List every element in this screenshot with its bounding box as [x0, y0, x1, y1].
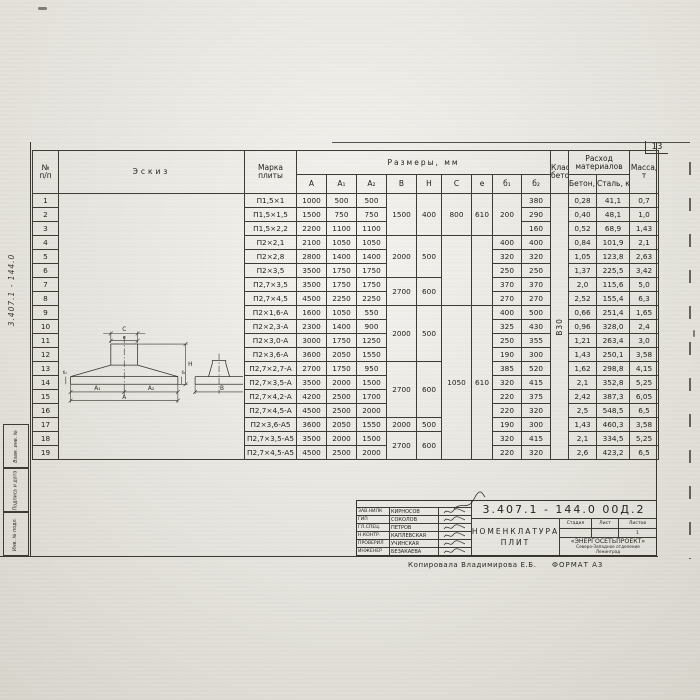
cell-A1: 1400 — [327, 320, 357, 334]
cell-b2: 415 — [522, 376, 551, 390]
signer-name: Безакаева — [390, 548, 439, 555]
cell-C: 800 — [442, 194, 472, 236]
signer-name: Соколов — [390, 516, 439, 523]
cell-A1: 1050 — [327, 236, 357, 250]
cell-e — [472, 236, 493, 306]
cell-mark: П1,5×1,5 — [245, 208, 297, 222]
cell-massa: 6,5 — [630, 446, 659, 460]
cell-A2: 950 — [357, 362, 387, 376]
stamp-vzam-inv: Взам. инв. № — [3, 424, 29, 468]
cell-massa: 6,5 — [630, 404, 659, 418]
cell-A2: 1500 — [357, 432, 387, 446]
cell-A1: 750 — [327, 208, 357, 222]
cell-A2: 1500 — [357, 376, 387, 390]
cell-num: 10 — [33, 320, 59, 334]
cell-A2: 900 — [357, 320, 387, 334]
col-header-A2: A₂ — [357, 175, 387, 194]
cell-mark: П2×3,6-А5 — [245, 418, 297, 432]
cell-A2: 2250 — [357, 292, 387, 306]
cell-B: 2000 — [387, 306, 417, 362]
cell-beton: 0,66 — [569, 306, 597, 320]
cell-mark: П2,7×4,2-А — [245, 390, 297, 404]
cell-mark: П2×3,5 — [245, 264, 297, 278]
cell-massa: 1,43 — [630, 222, 659, 236]
cell-b2: 270 — [522, 292, 551, 306]
cell-A: 2700 — [297, 362, 327, 376]
cell-beton: 2,52 — [569, 292, 597, 306]
cell-num: 5 — [33, 250, 59, 264]
cell-A: 3000 — [297, 334, 327, 348]
cell-massa: 3,58 — [630, 418, 659, 432]
cell-H: 500 — [417, 236, 442, 278]
cell-A1: 2000 — [327, 376, 357, 390]
cell-A: 1500 — [297, 208, 327, 222]
document-number: 3.407.1 - 144.0 00Д.2 — [472, 501, 656, 519]
cell-stal: 41,1 — [597, 194, 630, 208]
cell-b2: 300 — [522, 418, 551, 432]
col-header-class: Классбетона — [551, 151, 569, 194]
cell-num: 13 — [33, 362, 59, 376]
cell-A2: 500 — [357, 194, 387, 208]
cell-beton: 0,40 — [569, 208, 597, 222]
cell-beton: 2,42 — [569, 390, 597, 404]
cell-B: 2000 — [387, 418, 417, 432]
cell-stal: 123,8 — [597, 250, 630, 264]
col-header-consumption: Расходматериалов — [569, 151, 630, 175]
cell-b2: 380 — [522, 194, 551, 208]
cell-b1: 370 — [493, 278, 522, 292]
cell-num: 15 — [33, 390, 59, 404]
cell-stal: 352,8 — [597, 376, 630, 390]
signature — [439, 548, 471, 555]
cell-beton: 1,21 — [569, 334, 597, 348]
cell-stal: 68,9 — [597, 222, 630, 236]
cell-A2: 1400 — [357, 250, 387, 264]
signer-name: Петров — [390, 524, 439, 531]
fold-dashed-line — [689, 162, 691, 559]
cell-e: 610 — [472, 194, 493, 236]
col-header-b2: б₂ — [522, 175, 551, 194]
cell-A1: 1750 — [327, 264, 357, 278]
cell-A: 4500 — [297, 446, 327, 460]
signer-role: Н.контр. — [357, 532, 390, 539]
sheet-value — [592, 529, 619, 537]
title-block: Зав.НИЛККирносовГИПСоколовГл.спец.Петров… — [356, 500, 657, 556]
cell-A: 1600 — [297, 306, 327, 320]
cell-A: 4500 — [297, 404, 327, 418]
edge-stamp-column: Взам. инв. № Подпись и дата Инв. № подл. — [3, 424, 29, 556]
cell-massa: 3,0 — [630, 334, 659, 348]
cell-b1: 220 — [493, 390, 522, 404]
cell-A2: 2000 — [357, 404, 387, 418]
cell-A: 3500 — [297, 278, 327, 292]
cell-num: 1 — [33, 194, 59, 208]
cell-num: 12 — [33, 348, 59, 362]
cell-A: 2300 — [297, 320, 327, 334]
stamp-podpis-data: Подпись и дата — [3, 468, 29, 512]
cell-beton: 0,52 — [569, 222, 597, 236]
cell-b2: 370 — [522, 278, 551, 292]
col-header-mark: Маркаплиты — [245, 151, 297, 194]
signature — [439, 540, 471, 547]
sketch-cell: C е A₁ A₂ A H б₁ б₂ B 160 — [59, 194, 245, 460]
cell-num: 19 — [33, 446, 59, 460]
plate-section-drawing: C е A₁ A₂ A H б₁ б₂ B 160 — [61, 325, 243, 411]
cell-mark: П2,7×4,5-А5 — [245, 446, 297, 460]
cell-b1: 190 — [493, 348, 522, 362]
cell-beton: 1,37 — [569, 264, 597, 278]
cell-mark: П2×2,8 — [245, 250, 297, 264]
cell-mark: П2,7×4,5 — [245, 292, 297, 306]
signer-name: Кирносов — [390, 508, 439, 515]
cell-C — [442, 236, 472, 306]
cell-b2: 520 — [522, 362, 551, 376]
cell-A1: 1750 — [327, 278, 357, 292]
cell-A2: 1750 — [357, 278, 387, 292]
scan-speck — [38, 7, 47, 10]
cell-massa: 6,05 — [630, 390, 659, 404]
cell-stal: 115,6 — [597, 278, 630, 292]
cell-A: 2100 — [297, 236, 327, 250]
cell-num: 8 — [33, 292, 59, 306]
frame-bottom-line — [0, 556, 658, 557]
cell-H: 500 — [417, 418, 442, 432]
stage-header: Стадия — [560, 519, 592, 528]
cell-b1: 200 — [493, 194, 522, 236]
cell-num: 14 — [33, 376, 59, 390]
cell-e: 610 — [472, 306, 493, 460]
col-header-num: №п/п — [33, 151, 59, 194]
cell-num: 16 — [33, 404, 59, 418]
cell-stal: 298,8 — [597, 362, 630, 376]
signer-role: Проверил — [357, 540, 390, 547]
cell-beton: 1,62 — [569, 362, 597, 376]
cell-stal: 251,4 — [597, 306, 630, 320]
side-doc-number: 3.407.1 - 144.0 — [7, 230, 21, 350]
cell-massa: 2,1 — [630, 236, 659, 250]
cell-A: 4200 — [297, 390, 327, 404]
signer-role: ГИП — [357, 516, 390, 523]
cell-A2: 1050 — [357, 236, 387, 250]
cell-massa: 1,65 — [630, 306, 659, 320]
cell-mark: П1,5×2,2 — [245, 222, 297, 236]
cell-num: 2 — [33, 208, 59, 222]
cell-b2: 430 — [522, 320, 551, 334]
cell-mark: П2,7×3,5-А — [245, 376, 297, 390]
cell-stal: 250,1 — [597, 348, 630, 362]
cell-mark: П2×3,6-А — [245, 348, 297, 362]
cell-B: 2700 — [387, 278, 417, 306]
col-header-H: H — [417, 175, 442, 194]
cell-concrete-class: В30 — [551, 194, 569, 460]
cell-stal: 225,5 — [597, 264, 630, 278]
cell-num: 11 — [33, 334, 59, 348]
cell-num: 4 — [33, 236, 59, 250]
cell-mark: П1,5×1 — [245, 194, 297, 208]
nomenclature-table: №п/п Эскиз Маркаплиты Размеры, мм Классб… — [32, 150, 659, 460]
col-header-mass: Масса,т — [630, 151, 659, 194]
dim-label-A2: A₂ — [147, 386, 153, 392]
cell-num: 3 — [33, 222, 59, 236]
cell-b2: 250 — [522, 264, 551, 278]
col-header-b1: б₁ — [493, 175, 522, 194]
cell-A2: 1700 — [357, 390, 387, 404]
cell-A1: 2500 — [327, 446, 357, 460]
signer-row: Н.контр.Каплевская — [357, 532, 471, 540]
cell-A: 1000 — [297, 194, 327, 208]
cell-massa: 2,4 — [630, 320, 659, 334]
cell-massa: 4,15 — [630, 362, 659, 376]
signer-row: ПроверилУчинская — [357, 540, 471, 548]
cell-b2: 355 — [522, 334, 551, 348]
signature-flourish — [452, 491, 486, 513]
cell-A: 2800 — [297, 250, 327, 264]
cell-A2: 2000 — [357, 446, 387, 460]
cell-beton: 0,96 — [569, 320, 597, 334]
cell-beton: 0,28 — [569, 194, 597, 208]
cell-A2: 750 — [357, 208, 387, 222]
title-block-signers: Зав.НИЛККирносовГИПСоколовГл.спец.Петров… — [357, 501, 472, 555]
cell-b1: 270 — [493, 292, 522, 306]
cell-b2: 320 — [522, 446, 551, 460]
cell-b1: 325 — [493, 320, 522, 334]
col-header-e: е — [472, 175, 493, 194]
cell-A1: 1750 — [327, 362, 357, 376]
cell-A1: 1100 — [327, 222, 357, 236]
scan-speck — [693, 330, 695, 337]
cell-b1: 250 — [493, 264, 522, 278]
table-row: 1 C е A₁ A₂ A H б₁ б₂ B 160 П1,5×1100050… — [33, 194, 659, 208]
cell-A1: 1400 — [327, 250, 357, 264]
cell-A2: 1100 — [357, 222, 387, 236]
cell-stal: 101,9 — [597, 236, 630, 250]
cell-b1: 320 — [493, 376, 522, 390]
sheet-header: Лист — [592, 519, 619, 528]
cell-H: 600 — [417, 432, 442, 460]
cell-A1: 1050 — [327, 306, 357, 320]
cell-b2: 300 — [522, 348, 551, 362]
cell-b1: 190 — [493, 418, 522, 432]
dim-label-C: C — [122, 327, 126, 333]
plate-sketch: C е A₁ A₂ A H б₁ б₂ B 160 — [61, 325, 243, 413]
cell-A: 3600 — [297, 418, 327, 432]
cell-mark: П2,7×3,5-А5 — [245, 432, 297, 446]
cell-beton: 2,0 — [569, 278, 597, 292]
cell-b2: 320 — [522, 250, 551, 264]
cell-A1: 2050 — [327, 348, 357, 362]
cell-A2: 550 — [357, 306, 387, 320]
cell-num: 9 — [33, 306, 59, 320]
cell-b2: 320 — [522, 404, 551, 418]
cell-stal: 387,3 — [597, 390, 630, 404]
cell-A: 3600 — [297, 348, 327, 362]
cell-num: 18 — [33, 432, 59, 446]
cell-H: 500 — [417, 306, 442, 362]
cell-stal: 155,4 — [597, 292, 630, 306]
col-header-A: A — [297, 175, 327, 194]
sheets-value: 1 — [619, 529, 656, 537]
dim-label-b2: б₂ — [62, 370, 66, 375]
cell-massa: 0,7 — [630, 194, 659, 208]
col-header-dims: Размеры, мм — [297, 151, 551, 175]
cell-B: 2700 — [387, 362, 417, 418]
cell-massa: 6,3 — [630, 292, 659, 306]
cell-A1: 2000 — [327, 432, 357, 446]
cell-mark: П2×1,6-А — [245, 306, 297, 320]
col-header-sketch: Эскиз — [59, 151, 245, 194]
cell-b2: 500 — [522, 306, 551, 320]
cell-A: 4500 — [297, 292, 327, 306]
cell-stal: 460,3 — [597, 418, 630, 432]
organization: «ЭНЕРГОСЕТЬПРОЕКТ» Северо-Западное отдел… — [560, 538, 656, 555]
cell-b2: 290 — [522, 208, 551, 222]
cell-A1: 2050 — [327, 418, 357, 432]
cell-mark: П2×2,1 — [245, 236, 297, 250]
dim-label-b1: б₁ — [181, 370, 185, 375]
col-header-stal: Сталь, кг — [597, 175, 630, 194]
cell-beton: 1,43 — [569, 348, 597, 362]
col-header-A1: A₁ — [327, 175, 357, 194]
cell-B: 1500 — [387, 194, 417, 236]
cell-b2: 160 — [522, 222, 551, 236]
cell-A: 2200 — [297, 222, 327, 236]
cell-stal: 328,0 — [597, 320, 630, 334]
cell-stal: 334,5 — [597, 432, 630, 446]
cell-beton: 2,6 — [569, 446, 597, 460]
cell-massa: 2,63 — [630, 250, 659, 264]
cell-beton: 1,05 — [569, 250, 597, 264]
cell-H: 600 — [417, 362, 442, 418]
signature — [439, 524, 471, 531]
cell-mark: П2,7×3,5 — [245, 278, 297, 292]
sheets-header: Листов — [619, 519, 656, 528]
col-header-C: C — [442, 175, 472, 194]
title-block-meta: Стадия Лист Листов 1 «ЭНЕРГОСЕТЬПРОЕКТ» … — [560, 519, 656, 555]
cell-A1: 500 — [327, 194, 357, 208]
col-header-beton: Бетон, м³ — [569, 175, 597, 194]
cell-beton: 0,84 — [569, 236, 597, 250]
cell-B: 2700 — [387, 432, 417, 460]
cell-A: 3500 — [297, 432, 327, 446]
document-title: Номенклатура плит — [472, 519, 560, 555]
signer-name: Каплевская — [390, 532, 439, 539]
cell-A1: 1750 — [327, 334, 357, 348]
signer-row: Гл.спец.Петров — [357, 524, 471, 532]
dim-label-A: A — [122, 395, 126, 401]
cell-beton: 2,1 — [569, 432, 597, 446]
cell-stal: 423,2 — [597, 446, 630, 460]
signers-top-row — [357, 501, 471, 508]
dim-label-B: B — [219, 386, 223, 392]
signature — [439, 532, 471, 539]
dim-label-e: е — [122, 334, 125, 340]
org-city: Ленинград — [596, 550, 620, 555]
cell-b2: 415 — [522, 432, 551, 446]
cell-A2: 1550 — [357, 418, 387, 432]
cell-massa: 5,25 — [630, 376, 659, 390]
signer-role: Инженер — [357, 548, 390, 555]
cell-massa: 5,0 — [630, 278, 659, 292]
cell-C: 1050 — [442, 306, 472, 460]
cell-mark: П2,7×4,5-А — [245, 404, 297, 418]
cell-b1: 400 — [493, 236, 522, 250]
cell-b1: 385 — [493, 362, 522, 376]
dim-label-A1: A₁ — [94, 386, 100, 392]
stamp-inv-podl: Инв. № подл. — [3, 512, 29, 556]
stage-header-row: Стадия Лист Листов — [560, 519, 656, 529]
cell-H: 600 — [417, 278, 442, 306]
dim-label-H: H — [188, 362, 192, 368]
cell-stal: 48,1 — [597, 208, 630, 222]
cell-A: 3500 — [297, 264, 327, 278]
stage-value — [560, 529, 592, 537]
cell-A2: 1550 — [357, 348, 387, 362]
cell-b1: 320 — [493, 250, 522, 264]
cell-num: 6 — [33, 264, 59, 278]
signer-row: ИнженерБезакаева — [357, 548, 471, 555]
cell-A2: 1750 — [357, 264, 387, 278]
cell-b1: 250 — [493, 334, 522, 348]
cell-A: 3500 — [297, 376, 327, 390]
col-header-B: B — [387, 175, 417, 194]
cell-b2: 375 — [522, 390, 551, 404]
cell-b1: 220 — [493, 404, 522, 418]
cell-massa: 5,25 — [630, 432, 659, 446]
cell-massa: 1,0 — [630, 208, 659, 222]
cell-mark: П2×3,0-А — [245, 334, 297, 348]
cell-H: 400 — [417, 194, 442, 236]
cell-b2: 400 — [522, 236, 551, 250]
cell-A1: 2500 — [327, 390, 357, 404]
cell-mark: П2×2,3-А — [245, 320, 297, 334]
cell-b1: 400 — [493, 306, 522, 320]
cell-stal: 548,5 — [597, 404, 630, 418]
cell-num: 17 — [33, 418, 59, 432]
cell-A1: 2500 — [327, 404, 357, 418]
cell-B: 2000 — [387, 236, 417, 278]
cell-num: 7 — [33, 278, 59, 292]
cell-stal: 263,4 — [597, 334, 630, 348]
stage-value-row: 1 — [560, 529, 656, 538]
cell-massa: 3,42 — [630, 264, 659, 278]
cell-b1: 320 — [493, 432, 522, 446]
cell-A2: 1250 — [357, 334, 387, 348]
signature — [439, 516, 471, 523]
signer-role: Зав.НИЛК — [357, 508, 390, 515]
cell-beton: 1,43 — [569, 418, 597, 432]
cell-mark: П2,7×2,7-А — [245, 362, 297, 376]
scanned-drawing-sheet: { "page": { "sheet_number": "13", "side_… — [0, 0, 700, 700]
cell-b1: 220 — [493, 446, 522, 460]
signer-role: Гл.спец. — [357, 524, 390, 531]
cell-massa: 3,58 — [630, 348, 659, 362]
cell-beton: 2,5 — [569, 404, 597, 418]
title-block-right: 3.407.1 - 144.0 00Д.2 Номенклатура плит … — [472, 501, 656, 555]
frame-top-line — [332, 142, 690, 143]
copy-note: Копировала Владимирова Е.Б. — [408, 561, 537, 569]
format-note: ФОРМАТ А3 — [552, 561, 603, 569]
cell-A1: 2250 — [327, 292, 357, 306]
signer-name: Учинская — [390, 540, 439, 547]
signer-row: ГИПСоколов — [357, 516, 471, 524]
cell-beton: 2,1 — [569, 376, 597, 390]
